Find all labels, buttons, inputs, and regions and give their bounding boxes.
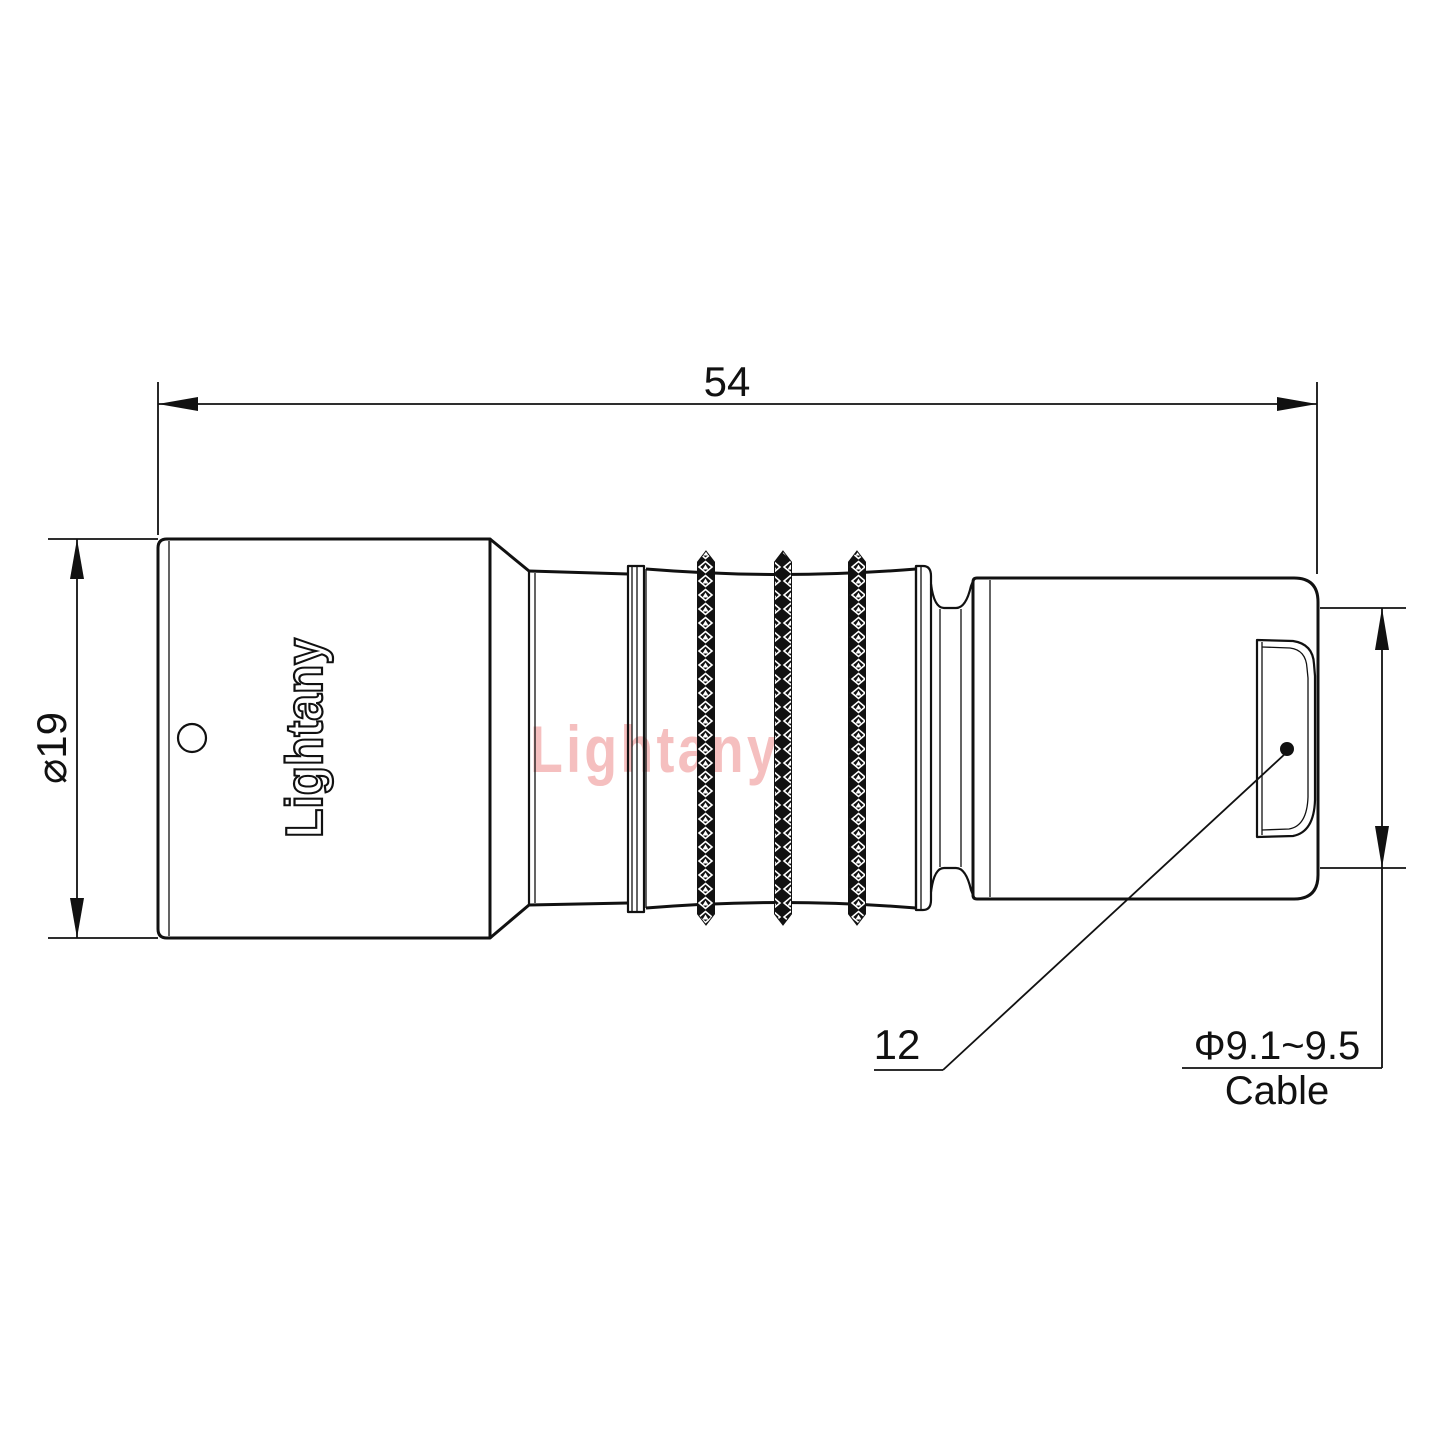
strain-relief-neck — [931, 581, 973, 895]
knurl-band — [775, 551, 792, 925]
technical-drawing-page: Lightany Lightany — [0, 0, 1440, 1440]
cable-label: Cable — [1225, 1069, 1330, 1113]
taper-cone — [490, 539, 529, 938]
dimension-overall-length: 54 — [158, 358, 1317, 574]
knurl-band — [698, 551, 715, 925]
dim-diameter-value: ⌀19 — [28, 712, 75, 784]
brand-engraving: Lightany — [276, 638, 334, 838]
front-shell: Lightany — [158, 539, 490, 938]
dim-length-value: 54 — [704, 358, 751, 405]
boot-ref-value: 12 — [874, 1021, 921, 1068]
leader-dot — [1280, 742, 1294, 756]
cable-diameter-value: Φ9.1~9.5 — [1194, 1024, 1360, 1068]
watermark-text: Lightany — [530, 712, 780, 786]
knurl-band — [849, 551, 866, 925]
shell-hole — [178, 724, 206, 752]
rear-shell — [973, 578, 1318, 899]
cable-boot — [1257, 640, 1315, 837]
dimension-cable-diameter: Φ9.1~9.5 Cable — [1182, 608, 1406, 1113]
label-boot-ref: 12 — [874, 753, 1286, 1070]
connector-drawing: Lightany Lightany — [0, 0, 1440, 1440]
dimension-body-diameter: ⌀19 — [28, 539, 158, 938]
